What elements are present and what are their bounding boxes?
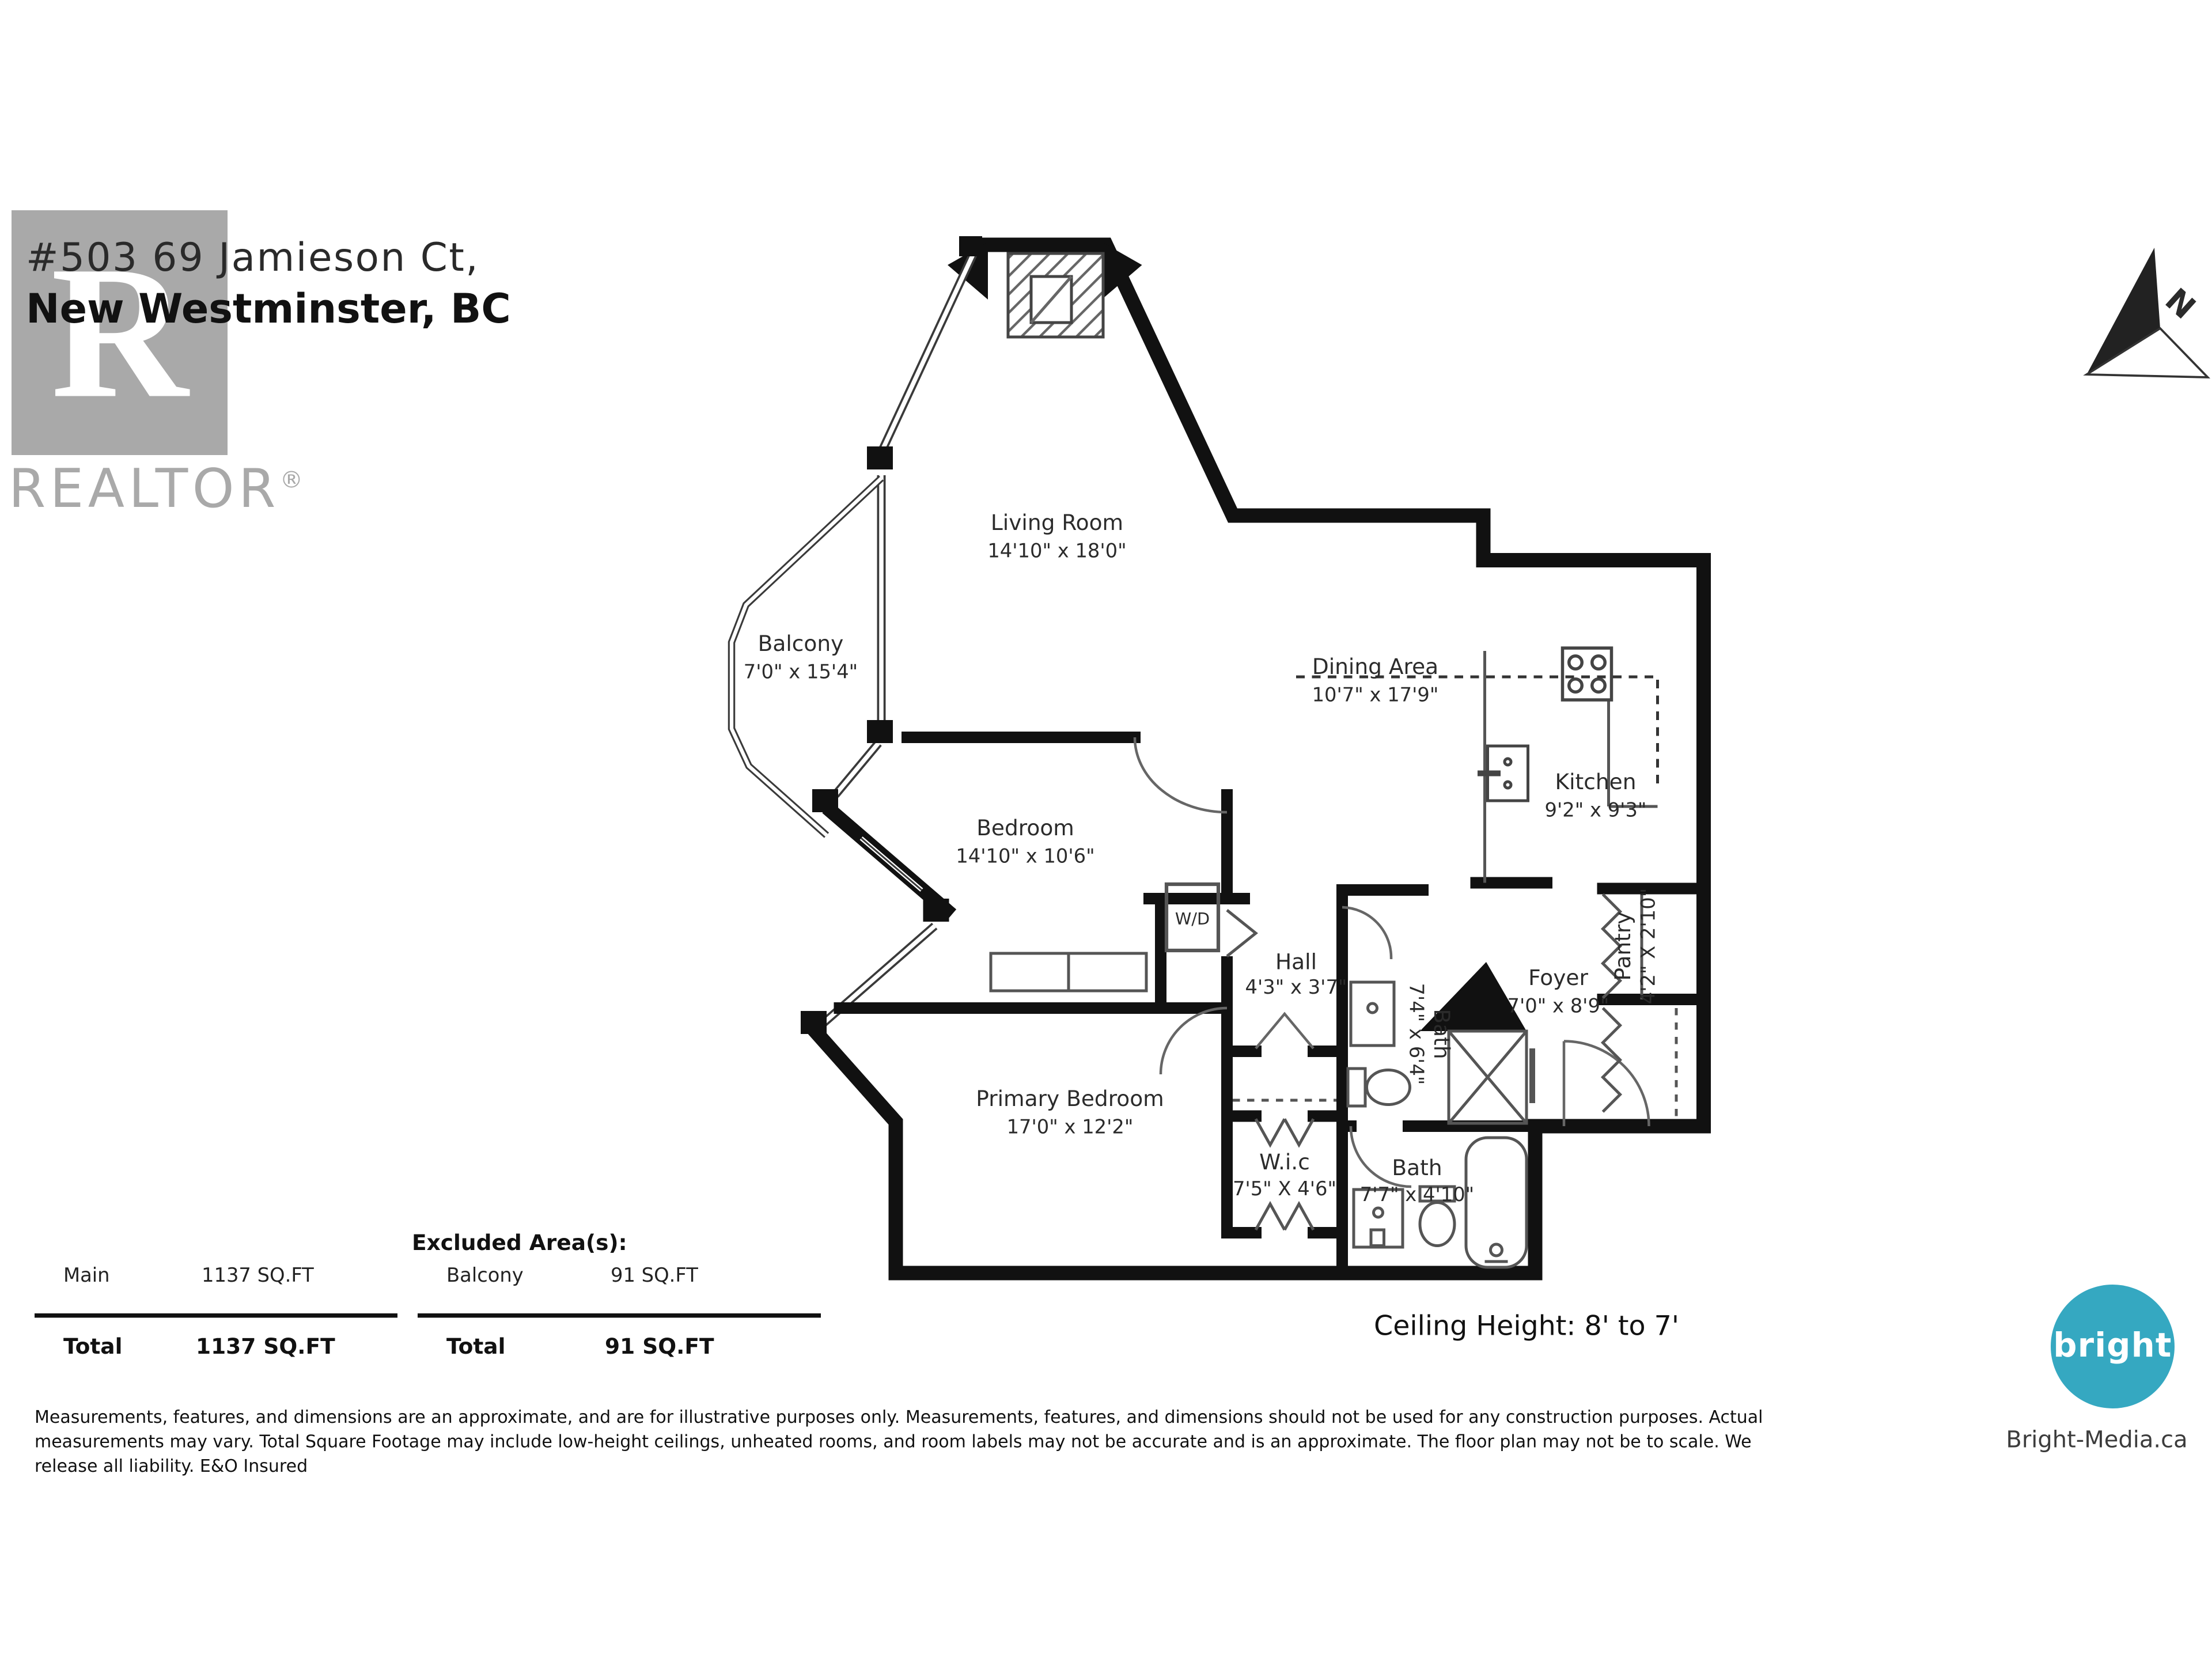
room-label-pantry: Pantry 4'2" X 2'10" — [1610, 888, 1660, 1005]
room-label-bedroom: Bedroom 14'10" x 10'6" — [956, 815, 1094, 868]
room-label-hall: Hall 4'3" x 3'7" — [1245, 949, 1347, 999]
bright-logo: bright — [2051, 1285, 2175, 1408]
svg-text:Primary Bedroom: Primary Bedroom — [976, 1086, 1164, 1111]
room-label-dining-area: Dining Area 10'7" x 17'9" — [1312, 654, 1439, 706]
north-label: N — [2158, 281, 2203, 326]
svg-text:W.i.c: W.i.c — [1259, 1149, 1310, 1175]
fireplace — [1008, 253, 1103, 337]
disclaimer-line1: Measurements, features, and dimensions a… — [35, 1406, 1763, 1430]
room-label-wic: W.i.c 7'5" X 4'6" — [1233, 1149, 1336, 1200]
svg-text:Bath: Bath — [1392, 1155, 1442, 1180]
svg-text:Balcony: Balcony — [758, 631, 844, 656]
ceiling-height-note: Ceiling Height: 8' to 7' — [1296, 1310, 1757, 1342]
room-label-bath-upper: Bath 7'4" x 6'4" — [1406, 983, 1455, 1085]
address-line1: #503 69 Jamieson Ct, — [26, 236, 511, 281]
table-rule-main — [35, 1313, 397, 1318]
svg-text:7'5" X 4'6": 7'5" X 4'6" — [1233, 1177, 1336, 1200]
svg-text:Living Room: Living Room — [991, 510, 1123, 535]
upper-bath-fixtures — [1348, 982, 1410, 1106]
total-excluded-label: Total — [446, 1334, 505, 1359]
excluded-areas-header: Excluded Area(s): — [412, 1230, 627, 1256]
floor-plan-page: R REALTOR® #503 69 Jamieson Ct, New West… — [0, 0, 2212, 1659]
svg-text:7'7" x 4'10": 7'7" x 4'10" — [1360, 1183, 1474, 1206]
svg-text:9'2" x 9'3": 9'2" x 9'3" — [1545, 799, 1647, 821]
bright-website: Bright-Media.ca — [1967, 1426, 2212, 1453]
svg-text:14'10" x 18'0": 14'10" x 18'0" — [987, 540, 1126, 562]
table-rule-excluded — [418, 1313, 821, 1318]
washer-dryer-label: W/D — [1175, 909, 1210, 929]
svg-text:Pantry: Pantry — [1610, 912, 1635, 981]
property-address: #503 69 Jamieson Ct, New Westminster, BC — [26, 236, 511, 333]
hall-door-swing — [1256, 1014, 1313, 1048]
svg-text:Hall: Hall — [1275, 949, 1317, 975]
main-area-value: 1137 SQ.FT — [202, 1264, 314, 1287]
disclaimer-line2: measurements may vary. Total Square Foot… — [35, 1430, 1763, 1455]
svg-text:Bedroom: Bedroom — [976, 815, 1074, 840]
room-label-living-room: Living Room 14'10" x 18'0" — [987, 510, 1126, 562]
room-label-balcony: Balcony 7'0" x 15'4" — [744, 631, 858, 683]
balcony-area-value: 91 SQ.FT — [611, 1264, 698, 1287]
disclaimer-line3: release all liability. E&O Insured — [35, 1455, 1763, 1479]
svg-text:14'10" x 10'6": 14'10" x 10'6" — [956, 845, 1094, 868]
room-label-kitchen: Kitchen 9'2" x 9'3" — [1545, 769, 1647, 821]
balcony-outline — [732, 478, 881, 835]
svg-text:Bath: Bath — [1429, 1009, 1455, 1059]
svg-text:7'0" x 8'9": 7'0" x 8'9" — [1508, 995, 1609, 1017]
north-arrow-icon: N — [2087, 248, 2208, 377]
total-main-label: Total — [63, 1334, 122, 1359]
room-label-foyer: Foyer 7'0" x 8'9" — [1508, 965, 1609, 1017]
svg-text:17'0" x 12'2": 17'0" x 12'2" — [1007, 1116, 1134, 1138]
room-label-bath-lower: Bath 7'7" x 4'10" — [1360, 1155, 1474, 1206]
svg-text:7'0" x 15'4": 7'0" x 15'4" — [744, 661, 858, 683]
svg-text:Kitchen: Kitchen — [1555, 769, 1637, 794]
total-main-value: 1137 SQ.FT — [196, 1334, 335, 1359]
total-excluded-value: 91 SQ.FT — [605, 1334, 714, 1359]
svg-text:Dining Area: Dining Area — [1312, 654, 1438, 679]
disclaimer: Measurements, features, and dimensions a… — [35, 1406, 1763, 1479]
balcony-area-label: Balcony — [446, 1264, 524, 1287]
address-line2: New Westminster, BC — [26, 285, 511, 333]
stove-icon — [1563, 648, 1612, 700]
svg-text:Foyer: Foyer — [1528, 965, 1588, 990]
svg-text:10'7" x 17'9": 10'7" x 17'9" — [1312, 684, 1439, 706]
svg-text:4'3" x 3'7": 4'3" x 3'7" — [1245, 976, 1347, 998]
svg-text:7'4" x 6'4": 7'4" x 6'4" — [1406, 983, 1428, 1085]
bedroom-closet — [991, 953, 1146, 991]
room-label-primary-bedroom: Primary Bedroom 17'0" x 12'2" — [976, 1086, 1164, 1138]
shower — [1449, 1031, 1532, 1123]
main-area-label: Main — [63, 1264, 110, 1287]
bright-logo-text: bright — [2053, 1328, 2172, 1365]
svg-text:4'2" X 2'10": 4'2" X 2'10" — [1637, 888, 1660, 1005]
